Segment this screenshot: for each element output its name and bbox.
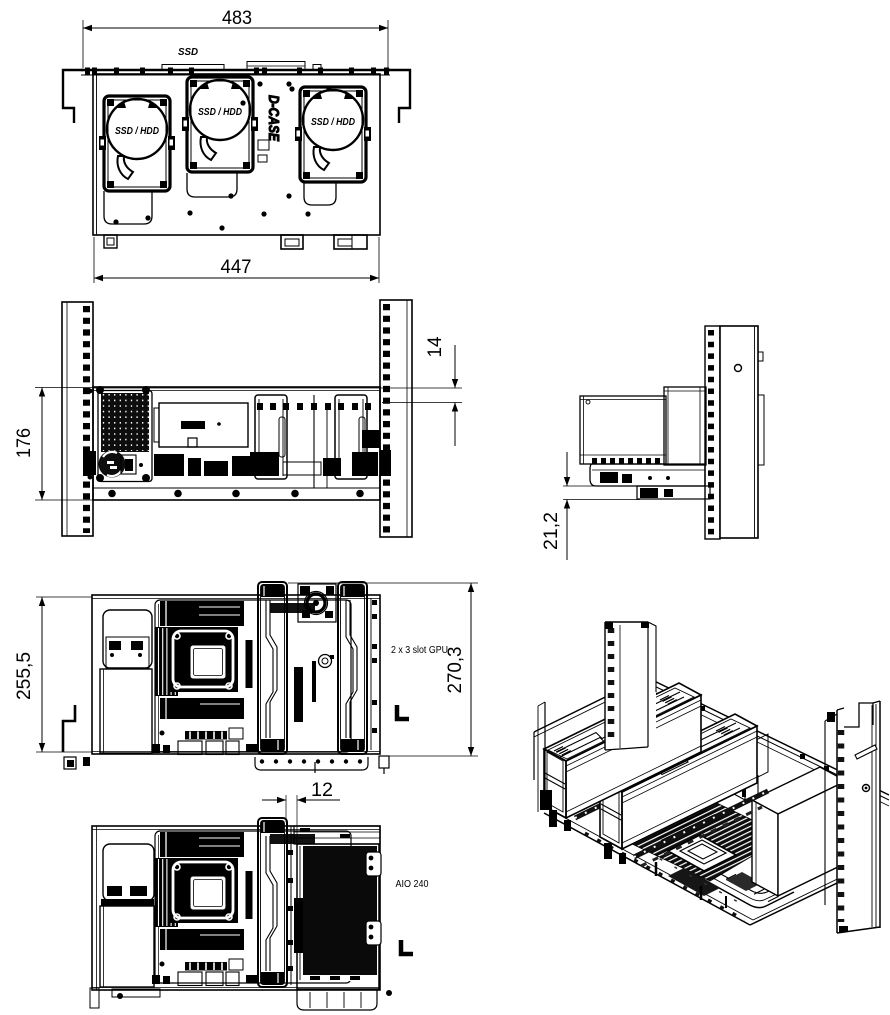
svg-text:21,2: 21,2 bbox=[541, 512, 562, 550]
svg-text:255,5: 255,5 bbox=[14, 652, 35, 700]
svg-text:176: 176 bbox=[14, 428, 35, 458]
svg-text:12: 12 bbox=[311, 780, 333, 801]
svg-text:SSD: SSD bbox=[178, 46, 198, 58]
svg-text:2 x 3 slot GPU: 2 x 3 slot GPU bbox=[391, 644, 448, 656]
svg-text:14: 14 bbox=[425, 336, 446, 357]
svg-text:270,3: 270,3 bbox=[445, 647, 466, 694]
svg-text:483: 483 bbox=[222, 8, 252, 29]
svg-text:447: 447 bbox=[221, 257, 252, 278]
svg-text:D-CASE: D-CASE bbox=[265, 95, 281, 142]
svg-text:AIO 240: AIO 240 bbox=[396, 878, 429, 890]
